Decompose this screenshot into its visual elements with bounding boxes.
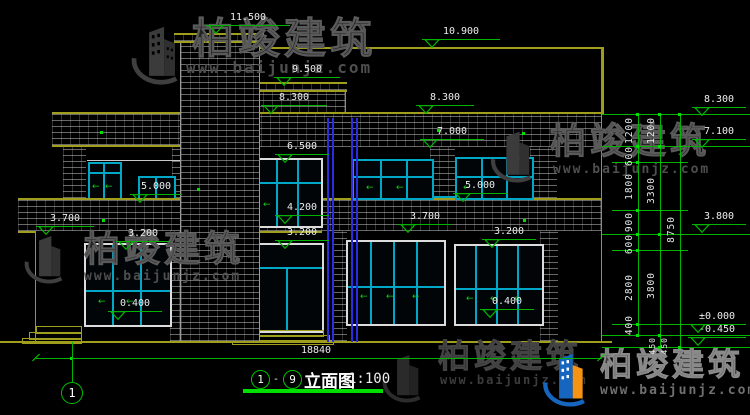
slide-arrow-icon: ← — [92, 183, 100, 192]
dim-value: 3800 — [646, 272, 657, 299]
roof-band-left — [52, 112, 180, 147]
elevation-value: 8.300 — [430, 92, 460, 103]
elevation-triangle-icon — [694, 224, 710, 233]
window-transom — [354, 176, 432, 178]
elevation-value: 7.100 — [704, 126, 734, 137]
elevation-marker: ±0.000 — [688, 311, 746, 325]
dimension-line — [660, 114, 661, 348]
extension-line — [602, 114, 750, 115]
stair-tower-cap — [174, 33, 264, 43]
slide-arrow-icon: ← — [412, 293, 420, 302]
window-transom — [90, 172, 120, 174]
elevation-triangle-icon — [455, 193, 471, 202]
title-underline — [243, 389, 383, 393]
total-width-value: 18840 — [286, 345, 346, 356]
dim-value: 1200 — [646, 117, 657, 144]
elevation-marker: 3.700 — [398, 211, 452, 225]
elevation-marker: 10.900 — [422, 26, 500, 40]
stair-tower — [180, 43, 260, 341]
elevation-triangle-icon — [418, 105, 434, 114]
watermark-url: www.baijunjz.com — [440, 374, 588, 386]
elevation-marker: 4.200 — [275, 202, 329, 216]
elevation-marker: 8.300 — [692, 94, 746, 108]
door-leaf-split — [286, 269, 288, 331]
elevation-triangle-icon — [132, 194, 148, 203]
elevation-value: 3.200 — [287, 227, 317, 238]
elevation-triangle-icon — [263, 105, 279, 114]
elevation-value: 7.000 — [437, 126, 467, 137]
ceiling-line-left — [87, 160, 186, 161]
elevation-value: -0.450 — [699, 324, 735, 335]
window-mullion — [393, 242, 395, 324]
dim-value: 600 — [624, 146, 635, 166]
elevation-marker: 0.400 — [108, 298, 162, 312]
elevation-marker: 9.500 — [274, 64, 340, 78]
extension-line — [602, 347, 750, 348]
elevation-marker: 7.000 — [420, 126, 484, 140]
dim-value: 400 — [624, 315, 635, 335]
downspout-pipe — [332, 118, 334, 342]
elevation-triangle-icon — [277, 154, 293, 163]
elevation-value: 5.000 — [141, 181, 171, 192]
window-lower-right-1 — [346, 240, 446, 326]
grid-line-1 — [72, 342, 73, 382]
window-transom — [348, 286, 444, 288]
total-width-dim-line — [36, 358, 602, 359]
watermark-url: www.baijunjz.com — [600, 384, 750, 397]
window-transom — [457, 176, 532, 178]
dim-value: 8750 — [666, 216, 677, 243]
elevation-value: 11.500 — [230, 12, 266, 23]
watermark-bottom-right — [538, 342, 600, 412]
dimension-line — [680, 114, 681, 348]
window-mullion — [406, 161, 408, 198]
dim-value: 450 — [660, 337, 669, 354]
elevation-triangle-icon — [424, 39, 440, 48]
pier-upper-left — [63, 147, 86, 198]
elevation-value: 3.700 — [410, 211, 440, 222]
elevation-triangle-icon — [38, 226, 54, 235]
window-mullion — [517, 246, 519, 324]
dim-value: 1200 — [624, 117, 635, 144]
watermark-brand: 柏竣建筑 — [438, 340, 582, 372]
elevation-triangle-icon — [208, 25, 224, 34]
elevation-marker: 7.100 — [692, 126, 746, 140]
window-mullion — [297, 160, 299, 226]
window-mullion — [380, 161, 382, 198]
elevation-triangle-icon — [690, 337, 706, 346]
elevation-triangle-icon — [277, 215, 293, 224]
slide-arrow-icon: ← — [263, 201, 271, 210]
window-mullion — [140, 245, 142, 325]
elevation-triangle-icon — [484, 239, 500, 248]
elevation-marker: 3.800 — [692, 211, 746, 225]
slide-arrow-icon: ← — [105, 183, 113, 192]
elevation-marker: 3.200 — [116, 228, 170, 242]
elevation-triangle-icon — [110, 311, 126, 320]
elevation-value: 0.400 — [120, 298, 150, 309]
elevation-triangle-icon — [118, 241, 134, 250]
title-grid-end: 9 — [283, 370, 302, 389]
dim-value: 600 — [624, 234, 635, 254]
elevation-value: 0.400 — [492, 296, 522, 307]
watermark-logo-icon — [538, 342, 600, 408]
dim-value: 1800 — [624, 173, 635, 200]
elevation-value: 3.700 — [50, 213, 80, 224]
elevation-marker: 5.000 — [453, 180, 507, 194]
dim-value: 900 — [624, 212, 635, 232]
window-lower-right-2 — [454, 244, 544, 326]
pier-lower-right-1 — [333, 231, 347, 341]
title-separator: - — [270, 374, 282, 385]
elevation-triangle-icon — [400, 224, 416, 233]
elevation-triangle-icon — [276, 77, 292, 86]
watermark-brand: 柏竣建筑 — [600, 348, 744, 380]
grid-bubble-1: 1 — [61, 382, 83, 404]
elevation-value: 4.200 — [287, 202, 317, 213]
extension-line — [612, 210, 688, 211]
elevation-marker: 5.000 — [130, 181, 182, 195]
elevation-value: 3.200 — [494, 226, 524, 237]
downspout-pipe — [356, 118, 358, 342]
entrance-door — [254, 243, 324, 333]
window-transom — [456, 288, 542, 290]
building-right-edge — [601, 47, 602, 341]
window-mullion — [475, 246, 477, 324]
elevation-marker: 6.500 — [275, 141, 329, 155]
pier-upper-right-2 — [530, 147, 557, 198]
dim-value: 3300 — [646, 177, 657, 204]
elevation-marker: 11.500 — [206, 12, 290, 26]
dim-value: 450 — [648, 337, 657, 354]
elevation-marker: 0.400 — [480, 296, 534, 310]
title-grid-start: 1 — [251, 370, 270, 389]
elevation-triangle-icon — [277, 240, 293, 249]
door-transom — [256, 267, 322, 269]
elevation-marker: 3.200 — [275, 227, 329, 241]
elevation-value: 5.000 — [465, 180, 495, 191]
slide-arrow-icon: ← — [466, 295, 474, 304]
window-transom — [257, 182, 321, 184]
slide-arrow-icon: ← — [366, 184, 374, 193]
window-upper-right-1 — [352, 159, 434, 200]
elevation-value: 6.500 — [287, 141, 317, 152]
elevation-triangle-icon — [422, 139, 438, 148]
slide-arrow-icon: ← — [98, 298, 106, 307]
window-mullion — [416, 242, 418, 324]
slide-arrow-icon: ← — [396, 184, 404, 193]
window-mullion — [370, 242, 372, 324]
window-transom — [86, 290, 170, 292]
elevation-marker: 8.300 — [416, 92, 474, 106]
elevation-marker: 3.200 — [482, 226, 536, 240]
elevation-value: 10.900 — [443, 26, 479, 37]
window-lower-left — [84, 243, 172, 327]
elevation-value: 8.300 — [279, 92, 309, 103]
slide-arrow-icon: ← — [360, 293, 368, 302]
drawing-scale: 1:100 — [348, 371, 390, 387]
downspout-pipe — [351, 118, 353, 342]
elevation-triangle-icon — [482, 309, 498, 318]
elevation-value: 3.800 — [704, 211, 734, 222]
dim-value: 2800 — [624, 274, 635, 301]
slide-arrow-icon: ← — [386, 293, 394, 302]
elevation-value: ±0.000 — [699, 311, 735, 322]
elevation-marker: 8.300 — [261, 92, 327, 106]
elevation-value: 8.300 — [704, 94, 734, 105]
elevation-drawing-canvas: ← ← ← ← ← ← ← ← ← ← ← ← ← ← 11.500 10.90… — [0, 0, 750, 415]
elevation-value: 3.200 — [128, 228, 158, 239]
elevation-value: 9.500 — [292, 64, 322, 75]
elevation-marker: 3.700 — [36, 213, 94, 227]
